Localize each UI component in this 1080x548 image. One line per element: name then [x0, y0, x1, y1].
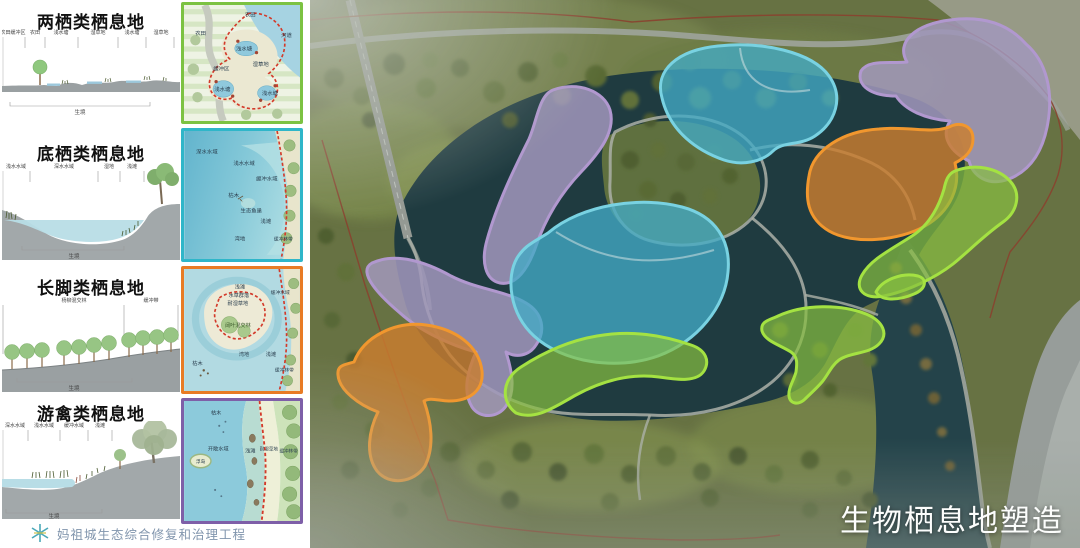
plan-label: 枯木	[228, 191, 239, 199]
plan-thumbnail-amphibian: 农田 农田 河道 浅水塘 湿草地 缓冲区 浅水塘 浅水塘	[181, 2, 303, 124]
plan-label: 农田	[245, 10, 256, 18]
plan-label: 枯木	[211, 408, 221, 416]
plan-label: 浅滩	[245, 447, 255, 455]
cross-section-waterfowl: 深水水域 浅水水域 缓冲水域 浅滩 生境	[2, 421, 180, 519]
dim-label: 湿草地	[153, 29, 168, 36]
dim-label: 深水水域	[54, 163, 74, 170]
dim-label: 浅水塘	[124, 29, 139, 36]
water	[2, 479, 75, 488]
dimension-ticks	[28, 430, 112, 441]
habitat-legend-panel: 两栖类栖息地 农田缓冲区 农田 浅水塘 湿草地 浅水塘 湿草地	[0, 0, 310, 548]
base-label: 生境	[48, 512, 60, 519]
dimension-ticks	[25, 37, 174, 48]
plan-label: 水草群落	[229, 291, 250, 299]
dim-label: 浅水塘	[53, 29, 68, 36]
project-footer: 妈祖城生态综合修复和治理工程	[30, 523, 246, 543]
plan-label: 浮岛	[196, 458, 206, 465]
plan-label: 枯木	[192, 359, 202, 367]
dim-label: 农田	[30, 29, 40, 36]
large-tree	[132, 421, 177, 463]
plan-label: 农田	[195, 29, 206, 37]
dim-label: 杨柳混交林	[61, 297, 86, 304]
plan-label: 浅水塘	[236, 45, 253, 53]
dim-label: 浅滩	[95, 422, 105, 429]
plan-label: 缓冲林带	[274, 235, 293, 242]
base-label: 生境	[68, 252, 80, 260]
dim-label: 浅水水域	[6, 163, 26, 170]
plan-label: 深水水域	[196, 148, 218, 156]
plan-label: 浅滩	[266, 350, 276, 358]
plan-label: 耐湿草地	[228, 299, 249, 307]
plan-thumbnail-benthic: 深水水域 浅水水域 缓冲水域 枯木 生态鱼巢 浅滩 湾地 缓冲林带	[181, 128, 303, 262]
slide: { "slide": { "map_title": "生物栖息地塑造", "pr…	[0, 0, 1080, 548]
plan-label: 缓冲水域	[271, 289, 290, 296]
base-label: 生境	[68, 384, 80, 392]
project-logo-icon	[30, 523, 50, 543]
plan-label: 阔叶混交林	[225, 321, 251, 329]
plan-label: 生态鱼巢	[241, 207, 263, 215]
cross-section-wader: 杨柳混交林 缓冲带 生境	[2, 296, 180, 392]
plan-label: 缓冲林带	[279, 448, 298, 455]
dimension-ticks	[30, 171, 144, 182]
plan-label: 浅滩	[235, 283, 245, 291]
plan-label: 浅水水域	[233, 159, 255, 167]
plan-label: 缓冲区	[213, 64, 230, 72]
dim-label: 浅滩	[127, 163, 137, 170]
dim-label: 农田缓冲区	[2, 29, 26, 36]
plan-label: 耐湿草地	[260, 446, 279, 453]
dim-label: 浅水水域	[34, 422, 54, 429]
plan-label: 浅滩	[260, 217, 271, 225]
plan-label: 缓冲水域	[256, 175, 278, 183]
plan-label: 开敞水域	[208, 445, 229, 453]
habitat-map-panel: 生物栖息地塑造	[310, 0, 1080, 548]
dim-label: 湿草地	[90, 29, 105, 36]
aerial-map	[310, 0, 1080, 548]
plan-label: 湿草地	[253, 60, 270, 68]
plan-label: 河道	[281, 31, 292, 39]
cross-section-benthic: 浅水水域 深水水域 湿地 浅滩 生境	[2, 162, 180, 260]
dim-label: 湿地	[104, 163, 114, 170]
dim-label: 缓冲带	[143, 297, 158, 304]
base-label: 生境	[74, 108, 86, 116]
habitat-extent-bracket	[10, 102, 150, 106]
plan-label: 湾地	[239, 350, 249, 358]
plan-thumbnail-waterfowl: 枯木 开敞水域 浮岛 浅滩 耐湿草地 缓冲林带	[181, 398, 303, 524]
cross-section-amphibian: 农田缓冲区 农田 浅水塘 湿草地 浅水塘 湿草地 生境	[2, 28, 180, 124]
plan-label: 缓冲林带	[275, 366, 294, 373]
plan-label: 浅水塘	[262, 89, 279, 97]
dim-label: 缓冲水域	[64, 422, 84, 429]
project-name: 妈祖城生态综合修复和治理工程	[57, 524, 246, 543]
dim-label: 深水水域	[5, 422, 25, 429]
plan-label: 湾地	[235, 234, 246, 242]
plan-thumbnail-wader: 浅滩 水草群落 耐湿草地 阔叶混交林 湾地 浅滩 缓冲水域 缓冲林带 枯木	[181, 266, 303, 394]
tree	[147, 163, 179, 204]
plan-label: 浅水塘	[214, 85, 231, 93]
tree	[33, 60, 47, 85]
page-title: 生物栖息地塑造	[840, 496, 1064, 540]
